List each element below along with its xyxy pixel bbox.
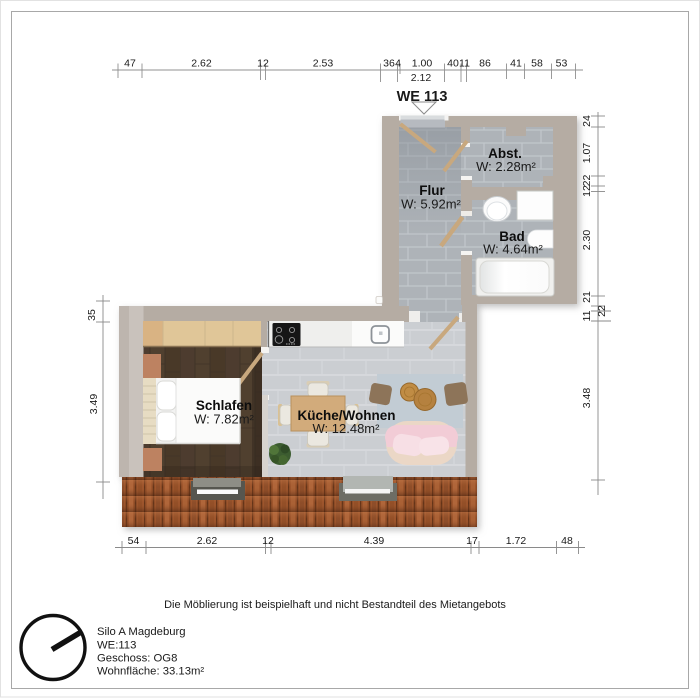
svg-text:12: 12	[262, 535, 274, 547]
svg-text:53: 53	[556, 58, 568, 70]
svg-text:4: 4	[395, 58, 401, 70]
svg-text:1.00: 1.00	[412, 58, 433, 70]
svg-text:3.49: 3.49	[88, 394, 100, 415]
svg-text:1.07: 1.07	[581, 143, 593, 164]
svg-text:58: 58	[531, 58, 543, 70]
svg-text:W: 2.28m²: W: 2.28m²	[476, 159, 536, 174]
svg-text:35: 35	[86, 309, 98, 321]
svg-text:22: 22	[596, 305, 608, 317]
svg-text:86: 86	[479, 58, 491, 70]
svg-text:11: 11	[459, 58, 470, 70]
svg-text:Die Möblierung ist beispielhaf: Die Möblierung ist beispielhaft und nich…	[164, 599, 506, 611]
svg-text:Silo A Magdeburg: Silo A Magdeburg	[97, 626, 186, 638]
svg-text:48: 48	[561, 535, 573, 547]
svg-text:W: 5.92m²: W: 5.92m²	[401, 197, 461, 212]
svg-text:12: 12	[581, 185, 593, 197]
svg-text:36: 36	[383, 58, 395, 70]
svg-text:21: 21	[581, 291, 593, 303]
svg-text:3.48: 3.48	[581, 388, 593, 409]
svg-text:2.62: 2.62	[197, 535, 218, 547]
svg-text:W: 7.82m²: W: 7.82m²	[194, 412, 254, 427]
svg-text:47: 47	[124, 58, 136, 70]
svg-text:54: 54	[128, 535, 140, 547]
svg-text:41: 41	[510, 58, 522, 70]
svg-text:W: 12.48m²: W: 12.48m²	[313, 421, 381, 436]
svg-text:11: 11	[581, 310, 593, 321]
svg-text:2.53: 2.53	[313, 58, 334, 70]
svg-text:WE:113: WE:113	[97, 640, 136, 652]
svg-text:40: 40	[447, 58, 459, 70]
svg-text:2.30: 2.30	[581, 230, 593, 251]
svg-text:24: 24	[581, 115, 593, 127]
svg-text:2.12: 2.12	[411, 72, 432, 84]
svg-text:2.62: 2.62	[191, 58, 212, 70]
svg-text:Wohnfläche: 33.13m²: Wohnfläche: 33.13m²	[97, 666, 204, 678]
svg-text:4.39: 4.39	[364, 535, 385, 547]
svg-text:1.72: 1.72	[506, 535, 527, 547]
svg-text:W: 4.64m²: W: 4.64m²	[483, 242, 543, 257]
svg-text:Geschoss: OG8: Geschoss: OG8	[97, 653, 177, 665]
svg-text:12: 12	[257, 58, 269, 70]
svg-text:22: 22	[581, 175, 593, 187]
svg-text:17: 17	[466, 535, 478, 547]
